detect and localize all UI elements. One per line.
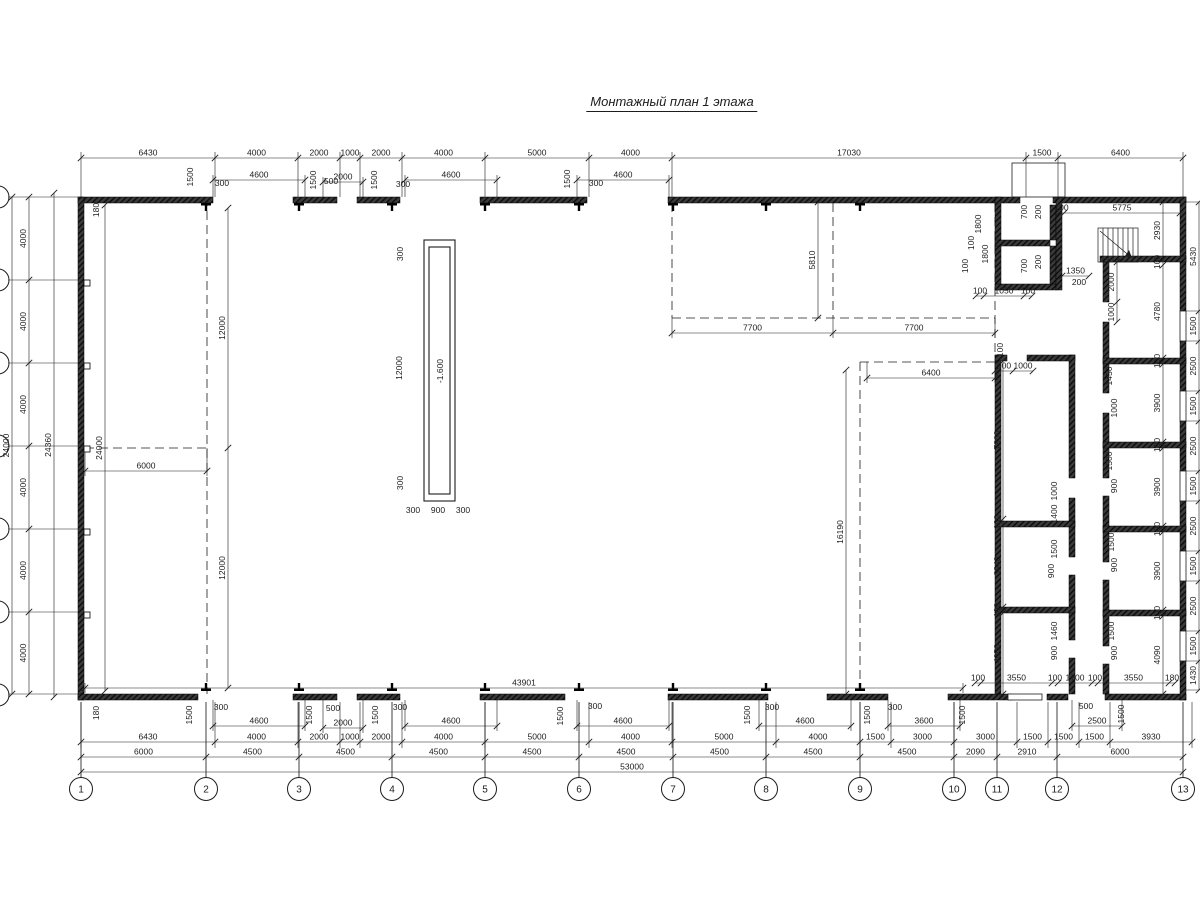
column-mark <box>391 683 393 691</box>
column-mark <box>672 203 674 211</box>
dim-label: 1000 <box>1109 398 1119 417</box>
column-mark <box>765 683 767 691</box>
axis-number: 8 <box>763 785 769 796</box>
dim-label: 1500 <box>1188 556 1198 575</box>
entrance-canopy <box>1012 163 1065 197</box>
dim-label: 4000 <box>18 643 28 662</box>
dim-label: 4000 <box>18 395 28 414</box>
dim-chain: 43901 <box>82 678 966 692</box>
wall-segment <box>480 197 587 203</box>
dim-label: 4500 <box>804 747 823 757</box>
dim-label: 4600 <box>250 170 269 180</box>
dim-label: 2930 <box>1152 221 1162 240</box>
axis-circle-left <box>0 186 9 208</box>
dim-label: 1500 <box>562 169 572 188</box>
wall-segment <box>78 197 84 700</box>
dim-label: 43901 <box>512 678 536 688</box>
dim-chain: 1005775 <box>1054 203 1183 217</box>
dim-label: 1500 <box>185 167 195 186</box>
wall-segment <box>995 521 1075 527</box>
dim-label: 1430 <box>1188 666 1198 685</box>
column-mark <box>391 203 393 211</box>
dim-label: 4600 <box>442 716 461 726</box>
dim-label: 5000 <box>528 148 547 158</box>
dim-label: 100 <box>971 673 985 683</box>
dim-label: 200 <box>1072 277 1086 287</box>
dim-label: 2000 <box>1106 272 1116 291</box>
dim-label: 5000 <box>528 732 547 742</box>
dim-chain: 77007700 <box>669 323 998 337</box>
dim-label: 4600 <box>614 170 633 180</box>
wall-segment <box>1069 355 1075 478</box>
dim-label: 300 <box>888 702 902 712</box>
window-symbol <box>1180 311 1186 341</box>
dim-label: 6400 <box>922 368 941 378</box>
column-mark <box>205 683 207 691</box>
wall-segment <box>1103 664 1109 694</box>
wall-segment <box>1103 610 1186 616</box>
axis-number: 10 <box>948 785 960 796</box>
axis-bubble: 6 <box>568 702 591 801</box>
dim-label: 700 <box>1019 259 1029 273</box>
dim-chain: 4600 <box>402 716 500 730</box>
dim-label: 4000 <box>247 148 266 158</box>
dim-label: 3900 <box>1152 393 1162 412</box>
pilaster-mark <box>84 612 90 618</box>
dim-label: 4000 <box>434 732 453 742</box>
axis-bubble: 7 <box>662 702 685 801</box>
dim-chain: 16190 <box>835 367 849 697</box>
axis-bubble: 12 <box>1046 702 1069 801</box>
wall-segment <box>995 607 1075 613</box>
dim-label: 2000 <box>310 148 329 158</box>
pilaster-mark <box>84 363 90 369</box>
dim-label: 6000 <box>137 461 156 471</box>
dim-label: 4000 <box>621 732 640 742</box>
column-mark <box>298 683 300 691</box>
dim-label: 1800 <box>973 214 983 233</box>
dim-label: 300 <box>456 505 470 515</box>
dim-label: 4500 <box>898 747 917 757</box>
dim-label: 12000 <box>394 356 404 380</box>
dim-label: 4600 <box>614 716 633 726</box>
dim-label: 4000 <box>18 312 28 331</box>
wall-segment <box>480 694 565 700</box>
window-symbol <box>1180 391 1186 421</box>
dim-label: 2000 <box>334 718 353 728</box>
dim-label: 1500 <box>184 705 194 724</box>
wall-segment <box>1027 355 1075 361</box>
dim-chain: 6400 <box>864 368 998 382</box>
column-mark <box>298 203 300 211</box>
dim-label: 1000 <box>341 148 360 158</box>
dim-label: 5775 <box>1113 203 1132 213</box>
dim-label: 300 <box>395 476 405 490</box>
wall-segment <box>1103 526 1186 532</box>
dim-label: 100 <box>992 515 1002 529</box>
dim-label: 6430 <box>139 148 158 158</box>
dim-label: 1000 <box>1106 302 1116 321</box>
axis-number: 5 <box>482 785 488 796</box>
dim-label: 1500 <box>1188 636 1198 655</box>
pilaster-mark <box>84 529 90 535</box>
dim-label: 5000 <box>715 732 734 742</box>
dim-label: 1500 <box>304 705 314 724</box>
dim-label: 1500 <box>1049 539 1059 558</box>
axis-circle-left <box>0 269 9 291</box>
dim-chain: 6000450045004500450045004500450045002090… <box>78 747 1186 761</box>
wall-segment <box>1103 442 1186 448</box>
dim-label: 1500 <box>369 170 379 189</box>
dim-label: 3900 <box>1152 477 1162 496</box>
axis-number: 9 <box>857 785 863 796</box>
dim-label: 1350 <box>1066 266 1085 276</box>
dim-label: 700 <box>1019 205 1029 219</box>
column-mark <box>578 203 580 211</box>
axis-circle-left <box>0 352 9 374</box>
dim-label: 1050 <box>995 286 1014 296</box>
dim-label: 300 <box>406 505 420 515</box>
dim-label: 4780 <box>1152 302 1162 321</box>
dim-label: 1500 <box>1033 148 1052 158</box>
dim-label: 3940 <box>992 556 1002 575</box>
dim-chain: 6430400020001000200040005000400050004000… <box>78 732 1195 746</box>
column-mark <box>859 683 861 691</box>
axis-number: 12 <box>1051 785 1063 796</box>
axis-bubble: 1 <box>70 702 93 801</box>
dim-label: 1500 <box>308 170 318 189</box>
wall-segment <box>357 197 400 203</box>
dim-label: 100 <box>1152 255 1162 269</box>
dim-chain: 5430150025001500250015002500150025001500… <box>1188 199 1200 693</box>
dim-label: 2000 <box>310 732 329 742</box>
dim-label: 4500 <box>429 747 448 757</box>
dim-label: 100 <box>1152 606 1162 620</box>
wall-segment <box>1047 694 1068 700</box>
dim-label: 2500 <box>1188 436 1198 455</box>
dim-label: 6000 <box>134 747 153 757</box>
dim-label: 900 <box>1046 564 1056 578</box>
dim-label: 300 <box>396 179 410 189</box>
dim-label: 1500 <box>555 706 565 725</box>
dim-label: 2500 <box>1188 356 1198 375</box>
column-mark <box>672 683 674 691</box>
dim-label: 4000 <box>247 732 266 742</box>
dim-label: 4000 <box>18 478 28 497</box>
dim-label: 300 <box>214 702 228 712</box>
dim-label: 200 <box>1033 255 1043 269</box>
column-mark <box>484 203 486 211</box>
dim-label: 300 <box>215 178 229 188</box>
dim-label: -1.600 <box>435 359 445 383</box>
drawing-sheet: 6430400020001000200040005000400017030150… <box>0 0 1200 900</box>
axis-number: 3 <box>296 785 302 796</box>
wall-segment <box>1050 246 1056 284</box>
dim-label: 3600 <box>915 716 934 726</box>
dim-label: 4600 <box>442 170 461 180</box>
dim-chain: 53000 <box>78 762 1186 776</box>
dim-label: 300 <box>765 702 779 712</box>
extension-lines <box>85 318 995 693</box>
dim-label: 4000 <box>621 148 640 158</box>
dim-label: 300 <box>588 701 602 711</box>
dim-label: 1500 <box>742 705 752 724</box>
dim-label: 7700 <box>905 323 924 333</box>
wall-segment <box>1103 358 1186 364</box>
pilaster-mark <box>84 280 90 286</box>
axis-number: 4 <box>389 785 395 796</box>
wall-segment <box>668 694 768 700</box>
dim-label: 4600 <box>250 716 269 726</box>
column-mark <box>205 203 207 211</box>
floor-plan: 6430400020001000200040005000400017030150… <box>0 0 1200 900</box>
dim-chain: 400040004000400040004000 <box>18 194 32 697</box>
dim-label: 12000 <box>217 316 227 340</box>
wall-segment <box>78 197 213 203</box>
axis-circle-left <box>0 518 9 540</box>
dim-label: 3930 <box>1142 732 1161 742</box>
dim-label: 1400 <box>1049 504 1059 523</box>
dim-label: 1500 <box>1188 476 1198 495</box>
dim-label: 3900 <box>1152 561 1162 580</box>
dim-label: 4090 <box>1152 645 1162 664</box>
dim-label: 17030 <box>837 148 861 158</box>
dim-label: 100 <box>966 236 976 250</box>
dim-label: 2090 <box>966 747 985 757</box>
dim-chain: 4600 <box>402 170 500 184</box>
dim-chain: 4600 <box>210 716 308 730</box>
axis-number: 13 <box>1177 785 1189 796</box>
dim-label: 900 <box>1109 479 1119 493</box>
axis-circle-left <box>0 684 9 706</box>
dim-label: 100 <box>1021 286 1035 296</box>
wall-segment <box>668 197 1020 203</box>
dim-label: 24360 <box>43 433 53 457</box>
dim-label: 4600 <box>796 716 815 726</box>
dim-label: 16190 <box>835 520 845 544</box>
dim-label: 900 <box>997 361 1011 371</box>
dim-label: 3000 <box>976 732 995 742</box>
dim-label: 5810 <box>807 250 817 269</box>
dim-label: 1500 <box>370 705 380 724</box>
axis-number: 2 <box>203 785 209 796</box>
axis-bubble: 13 <box>1172 702 1195 801</box>
dim-label: 4050 <box>992 644 1002 663</box>
dim-label: 1500 <box>1104 451 1114 470</box>
dim-label: 1000 <box>1014 361 1033 371</box>
column-mark <box>765 203 767 211</box>
dim-label: 1500 <box>1106 621 1116 640</box>
axis-number: 1 <box>78 785 84 796</box>
wall-segment <box>1105 694 1186 700</box>
wall-segment <box>1180 581 1186 631</box>
dim-label: 500 <box>1079 701 1093 711</box>
wall-segment <box>357 694 400 700</box>
dim-label: 53000 <box>620 762 644 772</box>
dim-label: 2000 <box>372 732 391 742</box>
dim-label: 100 <box>1048 673 1062 683</box>
dim-label: 100 <box>1054 203 1068 213</box>
dim-label: 900 <box>1049 646 1059 660</box>
wall-segment <box>827 694 888 700</box>
dim-label: 180 <box>91 203 101 217</box>
dim-label: 6430 <box>139 732 158 742</box>
dim-label: 100 <box>1152 354 1162 368</box>
dim-label: 1500 <box>1023 732 1042 742</box>
axis-bubble: 11 <box>986 702 1009 801</box>
dim-label: 500 <box>326 703 340 713</box>
dim-chain: 2000 <box>320 718 366 732</box>
dim-label: 300 <box>589 178 603 188</box>
dim-label: 200 <box>1033 205 1043 219</box>
dim-label: 4000 <box>434 148 453 158</box>
column-mark <box>484 683 486 691</box>
axis-bubble: 8 <box>755 702 778 801</box>
dim-label: 6400 <box>1111 148 1130 158</box>
dim-label: 900 <box>1109 646 1119 660</box>
window-symbol <box>1180 631 1186 661</box>
dim-label: 4500 <box>336 747 355 757</box>
dim-label: 100 <box>973 286 987 296</box>
dim-label: 100 <box>995 343 1005 357</box>
wall-segment <box>78 694 198 700</box>
dim-label: 4500 <box>523 747 542 757</box>
dim-label: 4500 <box>710 747 729 757</box>
dim-label: 300 <box>395 247 405 261</box>
column-mark <box>578 683 580 691</box>
dim-chain: 5810 <box>807 199 821 321</box>
dashed-axes-layer <box>85 197 995 694</box>
dim-label: 2000 <box>372 148 391 158</box>
axis-number: 7 <box>670 785 676 796</box>
pilaster-mark <box>84 446 90 452</box>
wall-segment <box>1180 341 1186 391</box>
axis-bubble: 4 <box>381 702 404 801</box>
drawing-title: Монтажный план 1 этажа <box>586 94 757 112</box>
dim-label: 1800 <box>980 244 990 263</box>
dim-label: 5430 <box>1188 247 1198 266</box>
column-mark <box>859 203 861 211</box>
axis-number: 6 <box>576 785 582 796</box>
dim-label: 1700 <box>1066 673 1085 683</box>
dim-label: 4000 <box>18 229 28 248</box>
dim-label: 3000 <box>913 732 932 742</box>
wall-segment <box>293 197 337 203</box>
dim-chain: 4600 <box>574 716 672 730</box>
dim-label: 1000 <box>1049 481 1059 500</box>
dim-label: 2500 <box>1188 596 1198 615</box>
dim-label: 1500 <box>1106 532 1116 551</box>
dim-label: 1500 <box>1188 396 1198 415</box>
dim-label: 2910 <box>1018 747 1037 757</box>
dim-label: 4000 <box>18 561 28 580</box>
wall-segment <box>1069 498 1075 557</box>
dim-label: 12000 <box>217 556 227 580</box>
dim-label: 6000 <box>1111 747 1130 757</box>
dim-label: 1500 <box>866 732 885 742</box>
window-symbol <box>1180 471 1186 501</box>
dim-chain: 3600 <box>885 716 963 730</box>
axis-bubble: 5 <box>474 702 497 801</box>
dim-label: 1500 <box>1116 704 1126 723</box>
dim-label: 180 <box>91 706 101 720</box>
wall-segment <box>995 240 1050 246</box>
dim-label: 4500 <box>617 747 636 757</box>
dim-label: 900 <box>431 505 445 515</box>
dim-label: 500 <box>324 176 338 186</box>
dim-label: 1460 <box>1049 621 1059 640</box>
dim-chain: 4600 <box>756 716 854 730</box>
dim-label: 3550 <box>1124 673 1143 683</box>
dim-chain: 6430400020001000200040005000400017030150… <box>78 148 1186 162</box>
dim-label: 100 <box>992 603 1002 617</box>
dim-chain: 1001050100 <box>973 286 1036 300</box>
dim-chain: 6000 <box>82 461 210 475</box>
dim-label: 24000 <box>94 436 104 460</box>
dim-chain: 24360 <box>43 190 57 700</box>
window-symbol <box>1180 551 1186 581</box>
dim-label: 100 <box>960 259 970 273</box>
dim-label: 3550 <box>1007 673 1026 683</box>
dim-label: 7700 <box>743 323 762 333</box>
dim-label: 1500 <box>862 705 872 724</box>
axis-bubble: 2 <box>195 702 218 801</box>
dim-label: 2500 <box>1088 716 1107 726</box>
dim-label: 900 <box>1109 558 1119 572</box>
dim-label: 4000 <box>809 732 828 742</box>
dim-label: 100 <box>1152 522 1162 536</box>
dim-label: 1500 <box>1085 732 1104 742</box>
dim-label: 180 <box>1165 673 1179 683</box>
dim-label: 1500 <box>957 705 967 724</box>
dim-label: 100 <box>1088 673 1102 683</box>
window-symbol <box>1008 694 1042 700</box>
dim-label: 7900 <box>992 430 1002 449</box>
axis-circle-left <box>0 601 9 623</box>
dim-chain: 1200012000 <box>217 205 231 691</box>
dim-label: 1500 <box>1188 316 1198 335</box>
wall-segment <box>1180 197 1186 311</box>
axis-number: 11 <box>992 785 1003 796</box>
dim-label: 2500 <box>1188 516 1198 535</box>
dim-label: 1450 <box>1104 366 1114 385</box>
dim-label: 300 <box>393 702 407 712</box>
wall-segment <box>293 694 337 700</box>
dim-label: 100 <box>1152 438 1162 452</box>
dim-label: 1000 <box>341 732 360 742</box>
wall-segment <box>1180 661 1186 700</box>
dim-label: 4500 <box>243 747 262 757</box>
